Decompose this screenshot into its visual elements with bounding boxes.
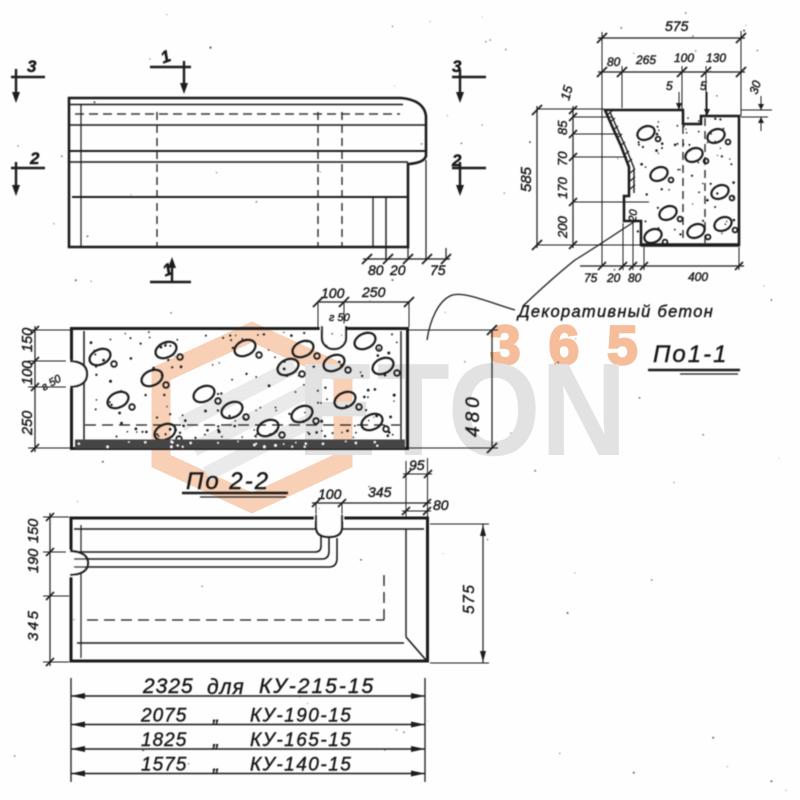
svg-text:для: для [207, 676, 245, 699]
svg-text:70: 70 [555, 151, 570, 166]
svg-text:20: 20 [389, 262, 406, 278]
svg-text:345: 345 [368, 484, 392, 500]
svg-text:ETON: ETON [297, 336, 627, 483]
svg-text:170: 170 [555, 177, 570, 199]
svg-text:75: 75 [584, 271, 598, 285]
svg-text:480: 480 [463, 393, 484, 437]
svg-text:КУ-165-15: КУ-165-15 [250, 730, 352, 751]
svg-text:85: 85 [555, 120, 570, 135]
svg-text:По 2-2: По 2-2 [186, 468, 270, 495]
svg-text:1575: 1575 [141, 755, 187, 776]
svg-text:585: 585 [518, 166, 535, 192]
svg-text:„: „ [212, 755, 219, 776]
svg-text:Декоративный бетон: Декоративный бетон [516, 303, 714, 321]
svg-text:80: 80 [628, 271, 642, 285]
svg-text:75: 75 [430, 262, 446, 278]
svg-text:200: 200 [555, 216, 570, 239]
svg-text:80: 80 [607, 55, 621, 69]
svg-text:250: 250 [361, 284, 386, 300]
svg-text:190: 190 [26, 549, 42, 573]
svg-text:150: 150 [26, 519, 42, 543]
svg-text:3: 3 [27, 57, 37, 76]
svg-text:„: „ [212, 706, 219, 727]
svg-text:20: 20 [627, 208, 640, 223]
svg-text:1825: 1825 [141, 730, 187, 751]
svg-text:КУ-215-15: КУ-215-15 [259, 675, 375, 698]
svg-text:575: 575 [665, 18, 689, 34]
svg-text:2325: 2325 [142, 675, 194, 698]
svg-text:345: 345 [25, 608, 42, 641]
svg-text:265: 265 [635, 53, 656, 67]
svg-text:20: 20 [606, 271, 621, 285]
svg-text:150: 150 [20, 328, 36, 352]
svg-text:„: „ [212, 730, 219, 751]
svg-text:80: 80 [433, 497, 449, 513]
svg-text:5: 5 [666, 79, 673, 93]
svg-text:100: 100 [321, 285, 345, 301]
svg-text:250: 250 [20, 411, 36, 436]
svg-text:575: 575 [461, 584, 478, 614]
svg-text:2075: 2075 [140, 706, 187, 727]
svg-text:100: 100 [318, 486, 342, 502]
svg-text:400: 400 [688, 270, 708, 284]
svg-text:г 50: г 50 [329, 312, 351, 324]
svg-text:КУ-190-15: КУ-190-15 [250, 706, 352, 727]
svg-text:100: 100 [674, 51, 694, 65]
svg-text:130: 130 [706, 51, 726, 65]
svg-text:80: 80 [368, 262, 384, 278]
svg-text:По1-1: По1-1 [653, 341, 728, 368]
svg-text:5: 5 [700, 79, 707, 93]
svg-text:КУ-140-15: КУ-140-15 [250, 755, 352, 776]
svg-text:100: 100 [20, 361, 36, 385]
svg-text:2: 2 [29, 149, 40, 168]
